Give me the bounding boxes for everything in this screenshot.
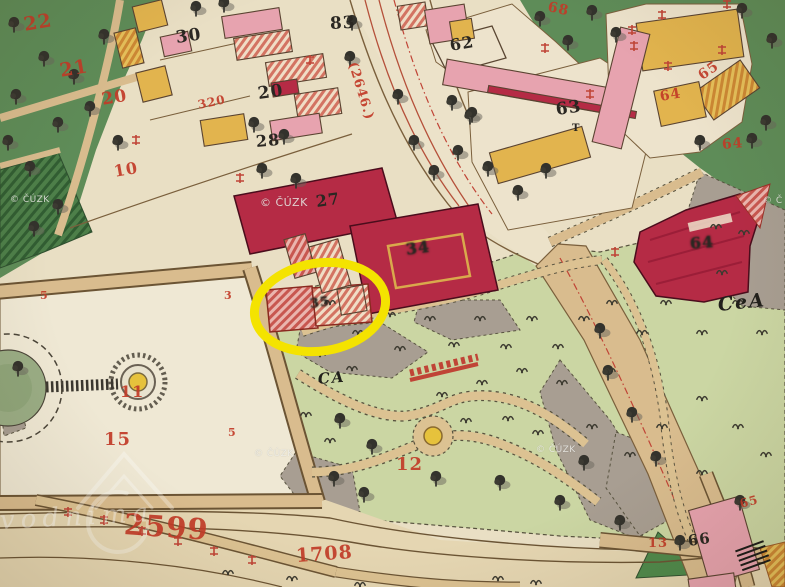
building: [397, 2, 428, 30]
building: [450, 18, 475, 41]
building: [136, 66, 172, 102]
steps-path-icon: [46, 384, 118, 387]
building-35-highlighted: [266, 286, 318, 332]
map-canvas: [0, 0, 785, 587]
building: [337, 285, 367, 315]
cadastral-map: 302028836263T273435646622212010320(2646.…: [0, 0, 785, 587]
